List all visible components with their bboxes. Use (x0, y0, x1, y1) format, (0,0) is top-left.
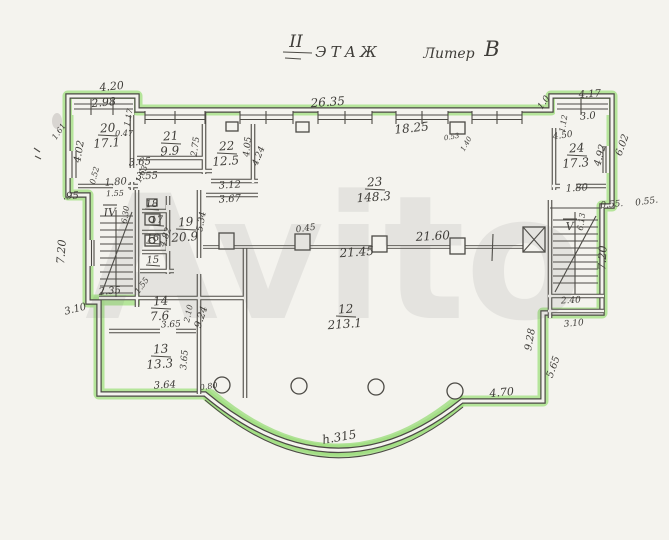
dimension-label: 7.20 (595, 245, 609, 270)
floor-word: ЭТАЖ (315, 43, 381, 61)
dimension-label: 1.55 (106, 189, 124, 199)
column-circle (368, 379, 384, 395)
stair-label: IV (102, 206, 117, 220)
liter-word: Литер (422, 46, 474, 62)
room-area: 12.5 (212, 153, 240, 169)
dimension-label: 21.45 (338, 244, 374, 260)
room-area: 13.3 (146, 356, 174, 372)
small-room-number: 16 (146, 233, 160, 245)
room-area: 9.9 (160, 143, 180, 158)
dimension-label: 3.0 (579, 110, 596, 122)
dimension-label: 3.12 (218, 179, 241, 191)
room-number: 21 (162, 128, 179, 143)
room-number: 12 (338, 301, 354, 316)
dimension-label: 2.35 (97, 285, 121, 298)
room-number: 23 (366, 174, 384, 189)
small-room-number: 15 (146, 255, 159, 267)
small-room-number: 18 (145, 199, 158, 211)
dimension-label: 4.70 (488, 385, 515, 400)
dimension-label: 3.67 (218, 193, 241, 205)
dimension-label: 4.17 (577, 88, 601, 100)
room-area: 20.9 (170, 229, 199, 245)
wall-pilaster (226, 122, 238, 131)
dimension-label: 26.35 (309, 94, 345, 110)
dimension-label: 1.80 (104, 176, 128, 189)
column-circle (291, 378, 307, 394)
dimension-label: 4.20 (98, 79, 125, 95)
room-area: 17.1 (93, 135, 121, 151)
room-area: 7.6 (150, 308, 170, 323)
dimension-label: 3.10 (563, 318, 584, 330)
scanned-floor-plan-page: { "title": { "floor_numeral": "II", "flo… (0, 0, 669, 540)
dimension-label: 3.64 (153, 379, 176, 391)
room-number: 22 (218, 138, 235, 153)
room-area: 213.1 (326, 316, 362, 332)
column-circle (447, 383, 463, 399)
dimension-label: 7.20 (54, 239, 69, 264)
room-number: 24 (568, 140, 585, 155)
dimension-label: 21.60 (414, 228, 450, 244)
small-room-number: 17 (150, 215, 164, 227)
floor-numeral: II (288, 32, 303, 52)
room-area: 148.3 (356, 189, 392, 205)
room-number: 19 (178, 214, 195, 229)
room-number: 14 (153, 293, 169, 308)
dimension-label: 2.40 (560, 295, 582, 306)
dimension-label: 1.80 (565, 182, 588, 194)
liter-value: В (483, 37, 499, 61)
room-number: 20 (99, 120, 117, 135)
room-area: 17.3 (562, 155, 590, 171)
dimension-label: .95 (63, 191, 79, 203)
floor-plan-scan: Avito 4.202.981.170.474.021.610.521.80.9… (0, 0, 669, 540)
dimension-label: 2.98 (90, 95, 117, 110)
room-number: 13 (153, 341, 170, 356)
dimension-label: 0.55. (600, 199, 624, 211)
wall-pilaster (296, 122, 309, 132)
dimension-label: 3.65 (179, 349, 191, 370)
